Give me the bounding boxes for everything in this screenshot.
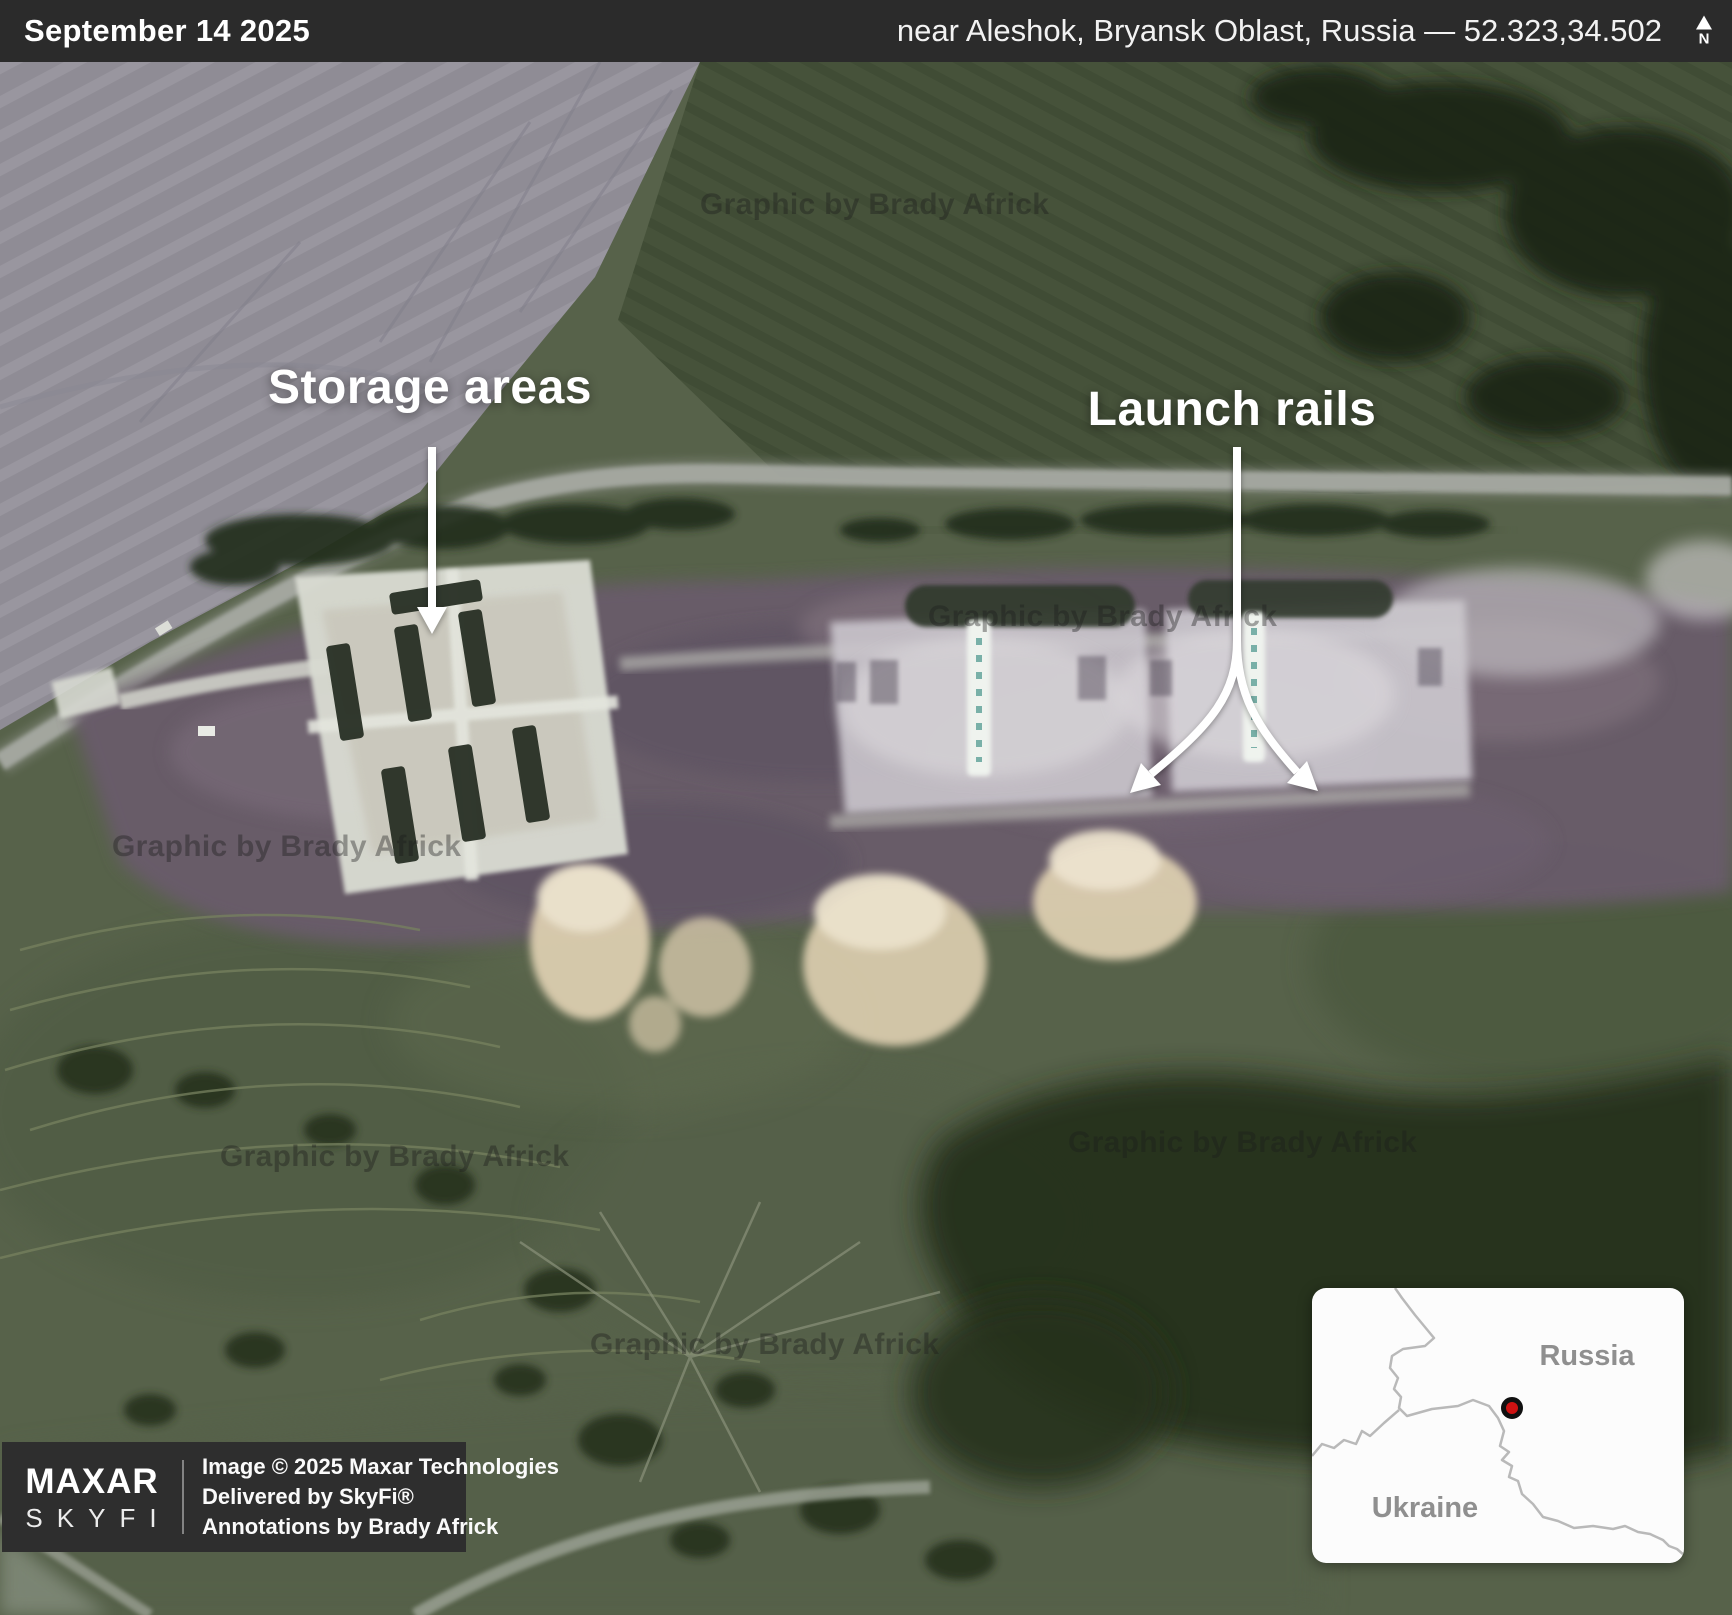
russia-label: Russia: [1539, 1340, 1635, 1372]
maxar-logo: MAXAR: [25, 1464, 158, 1499]
credit-lines: Image © 2025 Maxar Technologies Delivere…: [202, 1456, 559, 1538]
north-arrow-icon: N: [1696, 16, 1712, 47]
border-west-branch: [1312, 1410, 1399, 1456]
launch-rails-label: Launch rails: [1088, 382, 1377, 437]
annotation-credit: Annotations by Brady Africk: [202, 1516, 559, 1538]
delivery-credit: Delivered by SkyFi®: [202, 1486, 559, 1508]
skyfi-logo: SKYFI: [13, 1505, 170, 1531]
ukraine-label: Ukraine: [1372, 1492, 1478, 1524]
launch-rails-arrows: [1130, 447, 1318, 793]
credits-block: MAXAR SKYFI Image © 2025 Maxar Technolog…: [2, 1442, 466, 1552]
storage-areas-label: Storage areas: [268, 360, 592, 415]
satellite-image-area: Graphic by Brady Africk Graphic by Brady…: [0, 62, 1732, 1615]
location-coordinates: near Aleshok, Bryansk Oblast, Russia — 5…: [897, 13, 1662, 49]
annotated-satellite-graphic: September 14 2025 near Aleshok, Bryansk …: [0, 0, 1732, 1615]
location-marker: [1504, 1400, 1521, 1417]
north-arrow-triangle: [1696, 16, 1712, 30]
locator-map-drawing: Russia Ukraine: [1312, 1288, 1684, 1563]
storage-areas-arrow: [417, 447, 447, 634]
north-label: N: [1699, 32, 1710, 47]
maxar-skyfi-logo: MAXAR SKYFI: [2, 1464, 182, 1531]
locator-map: Russia Ukraine: [1312, 1288, 1684, 1563]
capture-date: September 14 2025: [24, 13, 310, 49]
header-bar: September 14 2025 near Aleshok, Bryansk …: [0, 0, 1732, 62]
credits-divider: [182, 1460, 184, 1534]
image-credit: Image © 2025 Maxar Technologies: [202, 1456, 559, 1478]
